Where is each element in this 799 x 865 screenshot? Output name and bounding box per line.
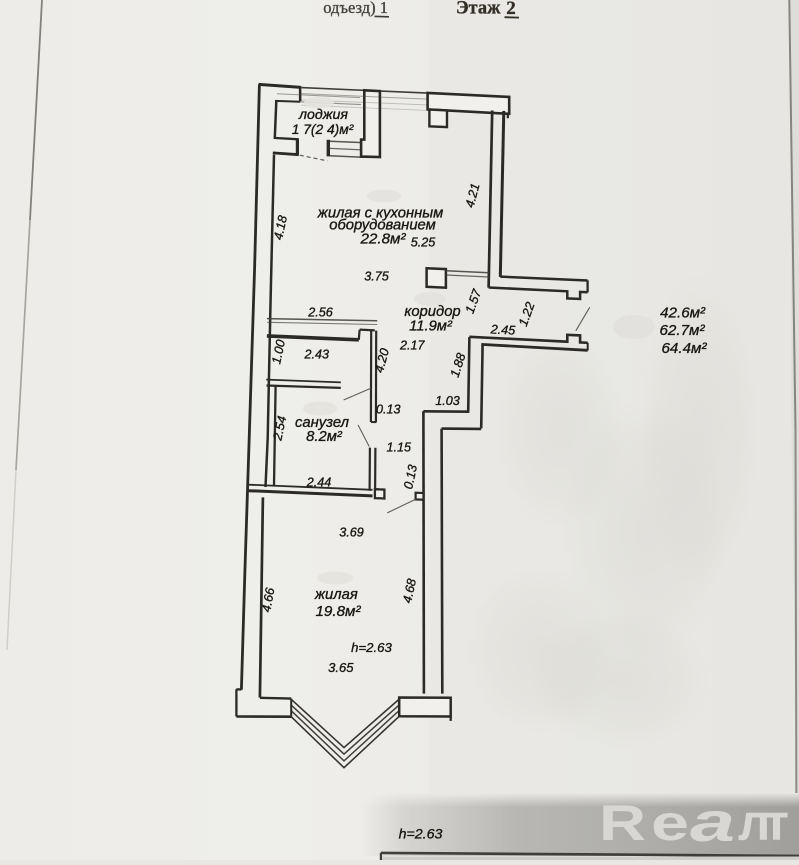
svg-text:лоджия: лоджия (298, 107, 348, 123)
svg-text:е: е (651, 795, 689, 851)
svg-text:5.25: 5.25 (411, 236, 437, 250)
svg-text:1.15: 1.15 (386, 441, 412, 455)
svg-text:3.69: 3.69 (339, 526, 364, 540)
svg-text:64.4м²: 64.4м² (661, 340, 707, 357)
svg-text:2.45: 2.45 (489, 322, 516, 337)
svg-text:1.03: 1.03 (435, 394, 460, 408)
svg-text:Этаж: Этаж (456, 0, 501, 19)
svg-text:11.9м²: 11.9м² (409, 319, 453, 335)
svg-text:19.8м²: 19.8м² (315, 603, 361, 620)
svg-text:а: а (690, 790, 735, 853)
svg-text:3.65: 3.65 (328, 660, 354, 675)
svg-text:2: 2 (506, 0, 516, 19)
svg-text:42.6м²: 42.6м² (660, 304, 706, 321)
svg-text:т: т (764, 794, 789, 851)
svg-text:8.2м²: 8.2м² (306, 429, 343, 445)
svg-text:2.44: 2.44 (306, 476, 332, 490)
svg-text:2.43: 2.43 (304, 348, 330, 362)
svg-text:жилая: жилая (314, 587, 358, 603)
svg-text:3.75: 3.75 (364, 270, 390, 284)
svg-text:h=2.63: h=2.63 (351, 640, 392, 655)
svg-text:2.17: 2.17 (399, 339, 426, 353)
svg-text:62.7м²: 62.7м² (659, 322, 705, 339)
svg-text:одъезд) 1: одъезд) 1 (323, 0, 388, 17)
svg-text:R: R (599, 795, 646, 851)
svg-text:2.56: 2.56 (307, 306, 333, 320)
svg-text:1 7(2 4)м²: 1 7(2 4)м² (292, 122, 354, 137)
svg-text:0.13: 0.13 (376, 403, 401, 417)
svg-text:22.8м²: 22.8м² (359, 231, 406, 248)
svg-text:h=2.63: h=2.63 (399, 827, 443, 843)
